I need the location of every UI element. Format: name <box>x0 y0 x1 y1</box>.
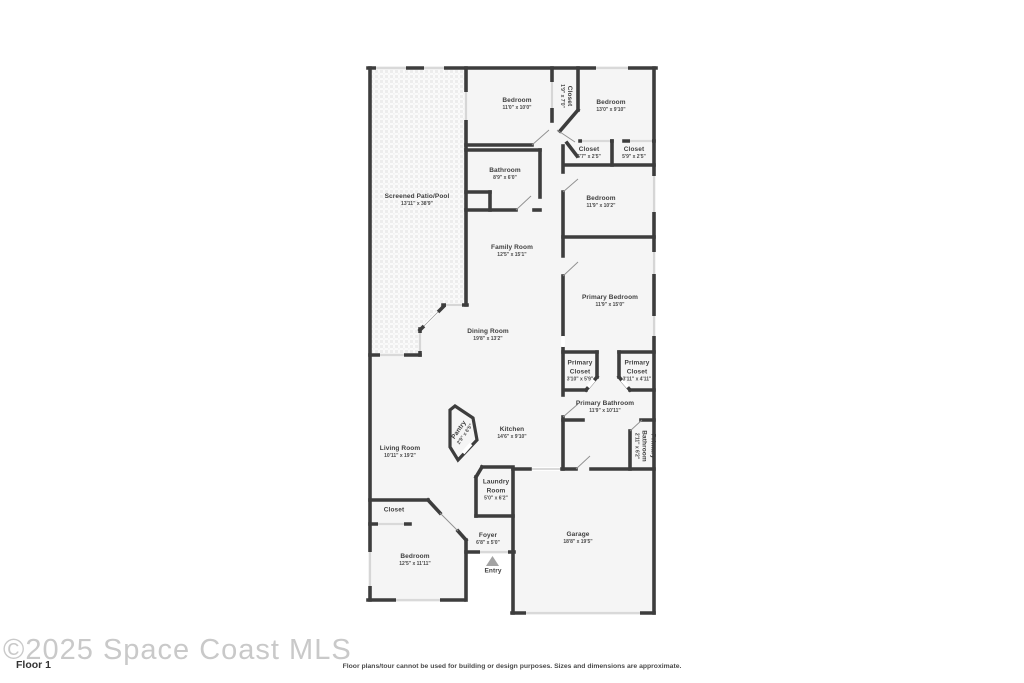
room-label-primary-bathroom: Primary Bathroom 11'9" x 10'11" <box>576 399 634 415</box>
room-label-closet-hall: Closet 1'9" x 7'0" <box>558 84 574 108</box>
room-label-primary-closet-right: Primary Closet 3'11" x 4'11" <box>621 358 653 383</box>
room-label-bedroom-top-right: Bedroom 13'0" x 9'10" <box>596 98 625 114</box>
room-label-bedroom-bottom: Bedroom 12'5" x 11'11" <box>399 552 431 568</box>
room-label-closet-b: Closet 5'9" x 2'5" <box>622 145 646 161</box>
disclaimer-text: Floor plans/tour cannot be used for buil… <box>0 663 1024 670</box>
room-label-bedroom-top-left: Bedroom 11'0" x 10'0" <box>502 96 531 112</box>
room-label-living-room: Living Room 10'11" x 19'2" <box>380 444 420 460</box>
room-label-bedroom-right: Bedroom 11'9" x 10'2" <box>586 194 615 210</box>
room-label-laundry-room: Laundry Room 5'0" x 6'2" <box>478 477 514 502</box>
room-label-foyer: Foyer 6'8" x 5'0" <box>476 531 500 547</box>
room-label-entry: Entry <box>484 566 501 575</box>
floor-plan-page: Screened Patio/Pool 13'11" x 38'9" Bedro… <box>0 0 1024 683</box>
room-label-family-room: Family Room 12'5" x 15'1" <box>491 243 533 259</box>
room-label-closet-bottom: Closet <box>384 505 404 514</box>
room-label-dining-room: Dining Room 19'8" x 13'2" <box>467 327 509 343</box>
entry-arrow-icon <box>486 556 499 566</box>
room-label-garage: Garage 18'8" x 19'5" <box>563 530 592 546</box>
room-label-primary-bedroom: Primary Bedroom 11'9" x 15'0" <box>582 293 638 309</box>
room-label-screened-patio: Screened Patio/Pool 13'11" x 38'9" <box>385 192 450 208</box>
room-label-bathroom: Bathroom 8'9" x 6'0" <box>489 166 521 182</box>
room-label-kitchen: Kitchen 14'6" x 9'10" <box>497 425 526 441</box>
room-label-primary-bathroom-wc: Primary Bathroom 2'11" x 6'2" <box>632 429 657 463</box>
room-label-closet-a: Closet 5'7" x 2'5" <box>577 145 601 161</box>
room-label-primary-closet-left: Primary Closet 3'10" x 5'9" <box>564 358 596 383</box>
